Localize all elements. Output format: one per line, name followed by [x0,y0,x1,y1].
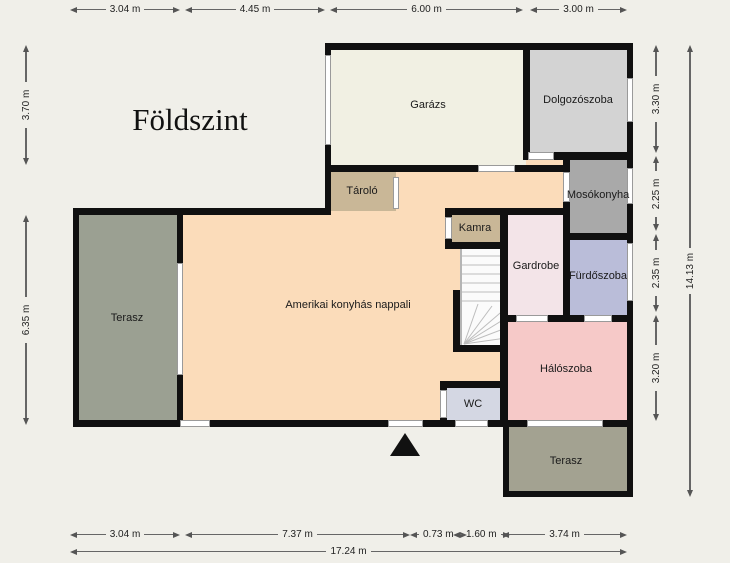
wall-stairs-bottom [453,345,508,352]
room-label-gardrobe: Gardrobe [513,260,559,272]
wall-kamra-bottom [445,242,507,249]
door-garage [478,165,515,172]
dim-top-1: 4.45 m [185,4,325,15]
door-kamra [445,217,452,239]
wall-stairs-gardrobe [500,208,508,322]
room-label-dolgozoszoba: Dolgozószoba [543,94,613,106]
room-label-furdoszoba: Fürdőszoba [569,270,627,282]
wall-terrace2-right [627,420,633,497]
dim-bottom-0: 3.04 m [70,529,180,540]
entrance-marker [390,433,420,456]
wall-terrace-left [73,208,79,427]
dim-left-1: 6.35 m [20,215,32,425]
room-label-kamra: Kamra [459,222,491,234]
wall-garage-bottom [325,165,570,172]
dim-bottom-total: 17.24 m [70,546,627,557]
dim-right-2: 2.35 m [650,234,662,312]
wall-moso-bottom [563,233,633,240]
room-label-terasz-oldal: Terasz [111,312,143,324]
door-terrace-glass [177,263,183,375]
stairs [460,246,504,346]
wall-stairs-left [453,290,460,352]
wall-living-top [73,208,331,215]
dim-bottom-4: 3.74 m [502,529,627,540]
dim-right-0: 3.30 m [650,45,662,153]
room-label-tarolo: Tároló [346,185,377,197]
wall-terrace2-left [503,420,509,497]
window-garage-left [325,55,331,145]
room-label-garazs: Garázs [410,99,445,111]
wall-terrace2-bottom [503,491,633,497]
wall-garage-divider [523,43,530,159]
room-label-haloszoba: Hálószoba [540,363,592,375]
dim-top-3: 3.00 m [530,4,627,15]
room-label-nappali: Amerikai konyhás nappali [285,299,410,311]
door-dolgozo [528,152,554,160]
wall-wc-top [440,381,508,388]
dim-left-0: 3.70 m [20,45,32,165]
dim-bottom-1: 7.37 m [185,529,410,540]
dim-top-2: 6.00 m [330,4,523,15]
door-gardrobe [516,315,548,322]
wall-halo-left [500,315,508,427]
plan-title: Földszint [132,102,247,138]
dim-bottom-3: 1.60 m [453,529,502,540]
wall-top [325,43,633,50]
door-wc [440,390,447,418]
door-entrance [388,420,423,427]
room-label-terasz-also: Terasz [550,455,582,467]
dim-right-3: 3.20 m [650,315,662,421]
dim-right-total: 14.13 m [684,45,696,497]
door-tarolo [393,177,399,209]
window-haloszoba [527,420,603,427]
opening-wc-bottom [455,420,488,427]
dim-right-1: 2.25 m [650,156,662,231]
floor-plan: Földszint [0,0,730,563]
dim-bottom-2: 0.73 m [410,529,453,540]
room-label-mosokonyha: Mosókonyha [567,189,629,201]
door-terrace-bottomleft [180,420,210,427]
door-furdoszoba [584,315,612,322]
dim-top-0: 3.04 m [70,4,180,15]
room-label-wc: WC [464,398,482,410]
